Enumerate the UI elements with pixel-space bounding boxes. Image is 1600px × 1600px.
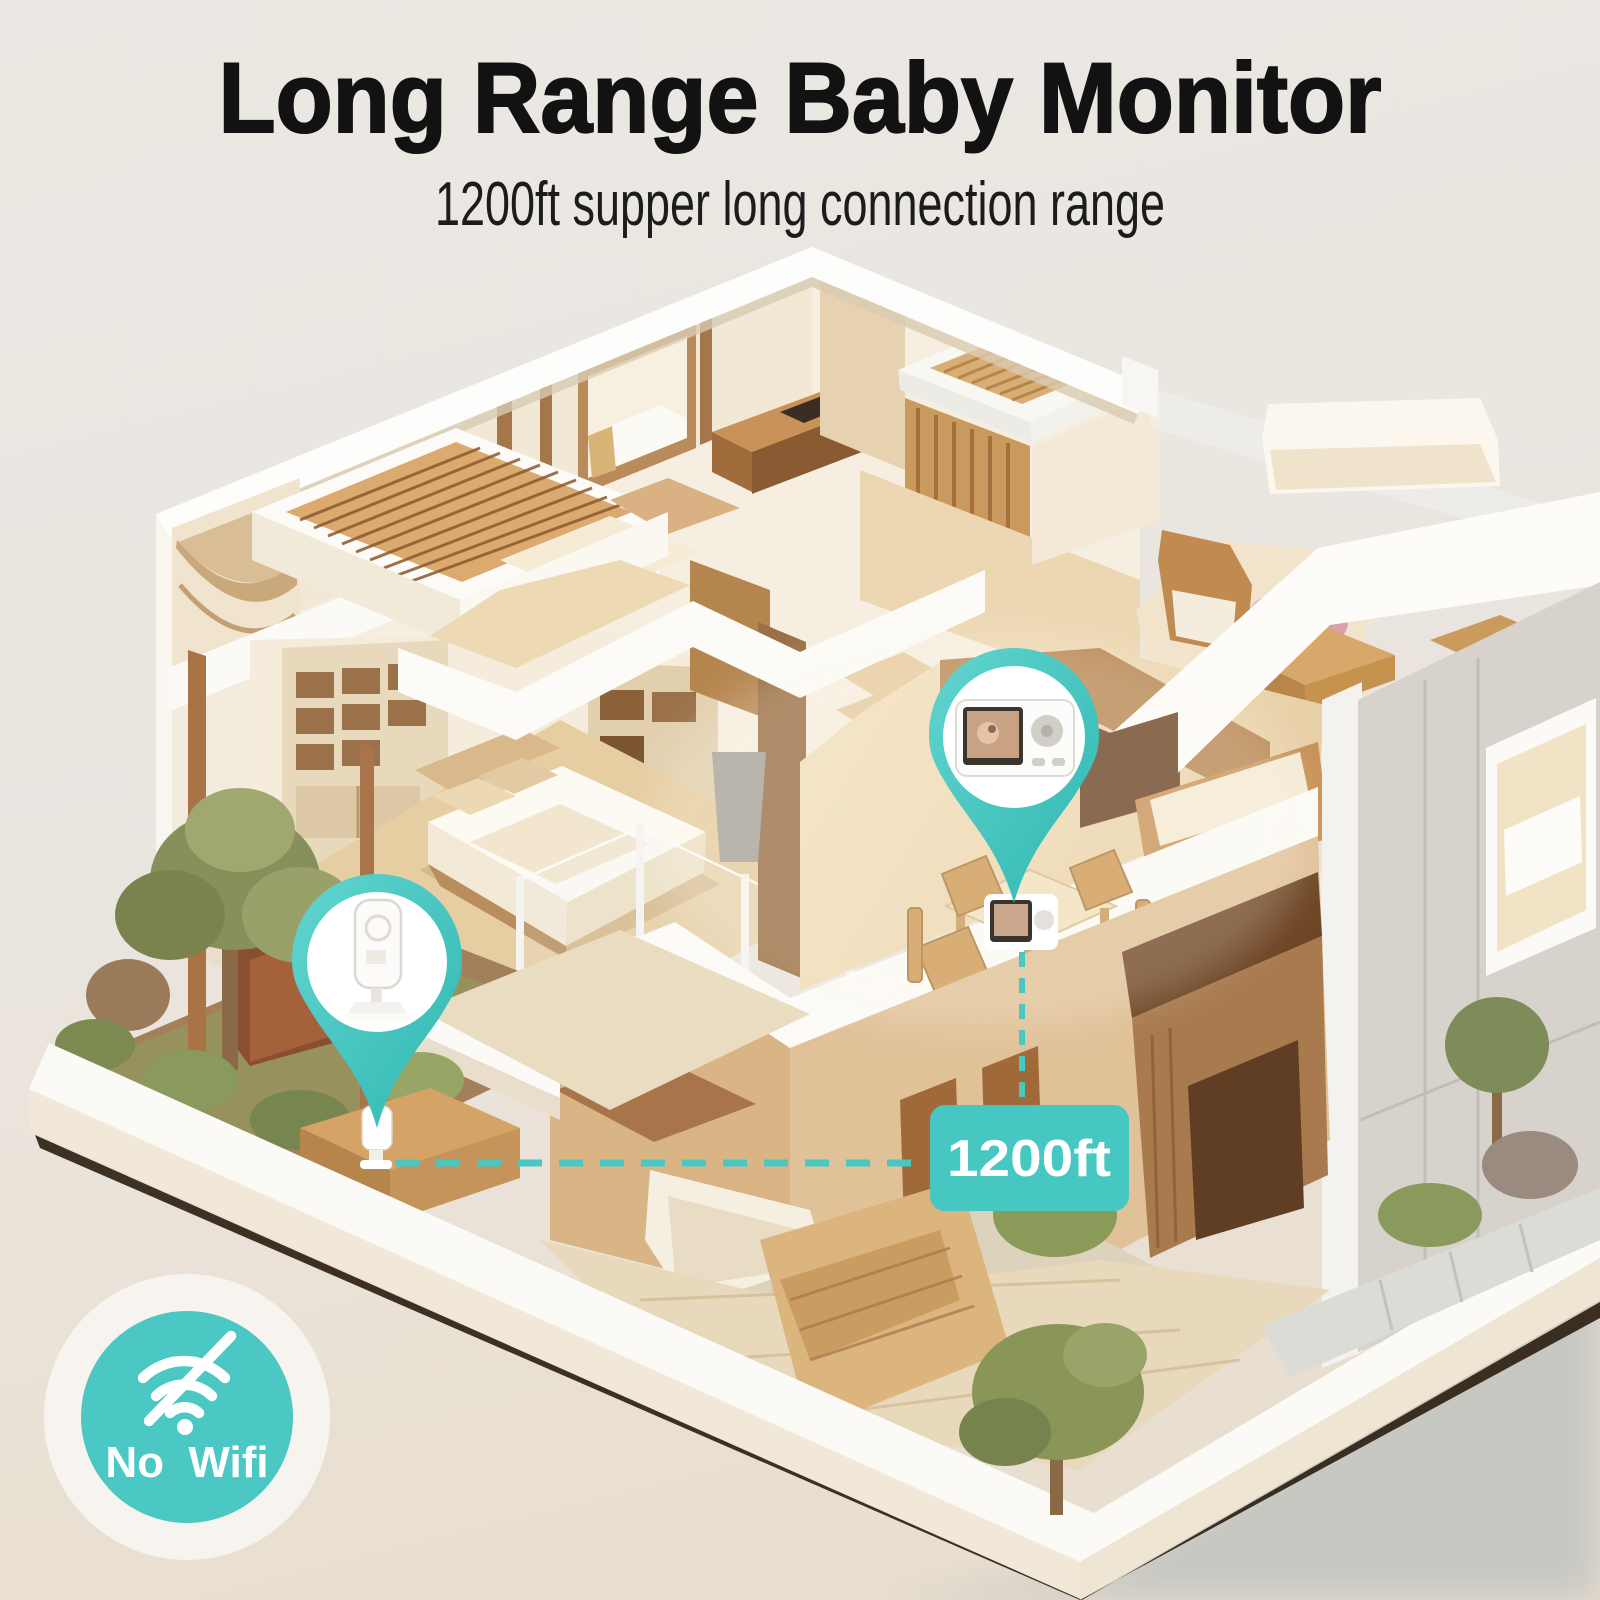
svg-text:1200ft: 1200ft [947, 1130, 1111, 1188]
svg-text:1200ft supper long connection: 1200ft supper long connection range [435, 170, 1165, 239]
svg-text:Long Range Baby Monitor: Long Range Baby Monitor [219, 42, 1382, 153]
svg-text:No Wifi: No Wifi [105, 1438, 268, 1487]
